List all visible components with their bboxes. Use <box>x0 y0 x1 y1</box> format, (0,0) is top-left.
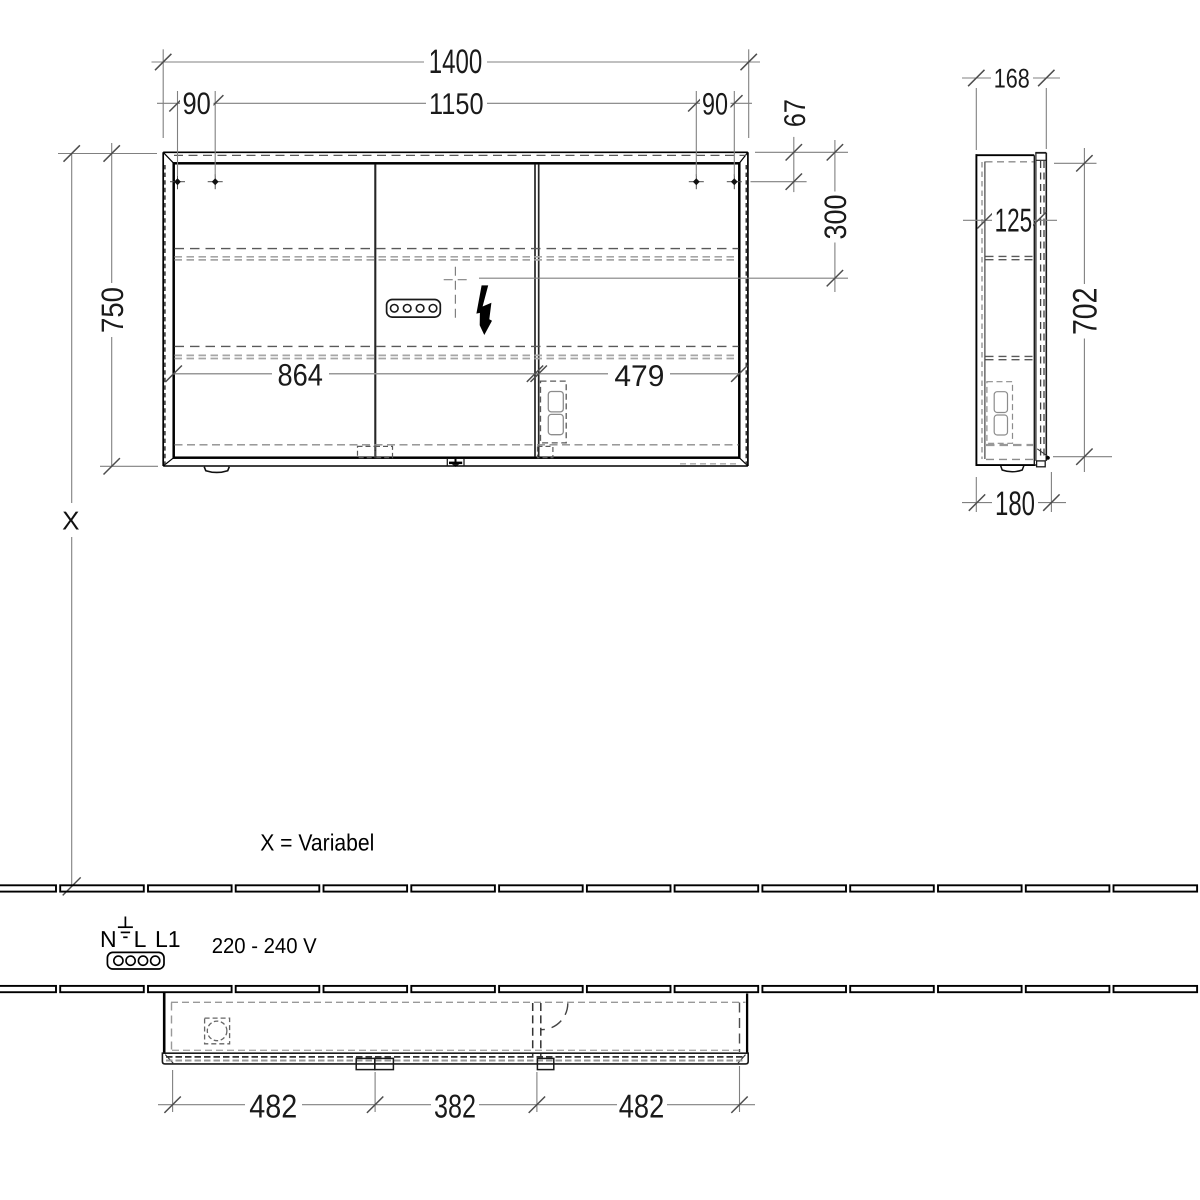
svg-text:N: N <box>100 926 117 952</box>
svg-text:300: 300 <box>818 195 853 240</box>
svg-text:479: 479 <box>614 360 664 393</box>
svg-text:125: 125 <box>995 202 1033 239</box>
svg-text:168: 168 <box>994 64 1030 94</box>
svg-text:180: 180 <box>995 485 1035 523</box>
svg-text:1150: 1150 <box>429 88 484 121</box>
svg-text:220 - 240 V: 220 - 240 V <box>212 934 318 958</box>
svg-text:X: X <box>62 505 79 535</box>
svg-text:L1: L1 <box>155 926 181 952</box>
svg-text:750: 750 <box>95 287 130 333</box>
svg-text:90: 90 <box>182 86 210 121</box>
svg-text:864: 864 <box>278 358 323 393</box>
svg-text:1400: 1400 <box>429 43 483 81</box>
svg-text:702: 702 <box>1067 288 1105 336</box>
svg-text:L: L <box>134 926 147 952</box>
svg-text:90: 90 <box>702 87 728 122</box>
svg-text:67: 67 <box>779 99 812 127</box>
svg-text:382: 382 <box>434 1087 476 1124</box>
svg-text:482: 482 <box>619 1087 665 1124</box>
svg-text:482: 482 <box>249 1087 297 1124</box>
svg-text:X = Variabel: X = Variabel <box>260 829 374 855</box>
